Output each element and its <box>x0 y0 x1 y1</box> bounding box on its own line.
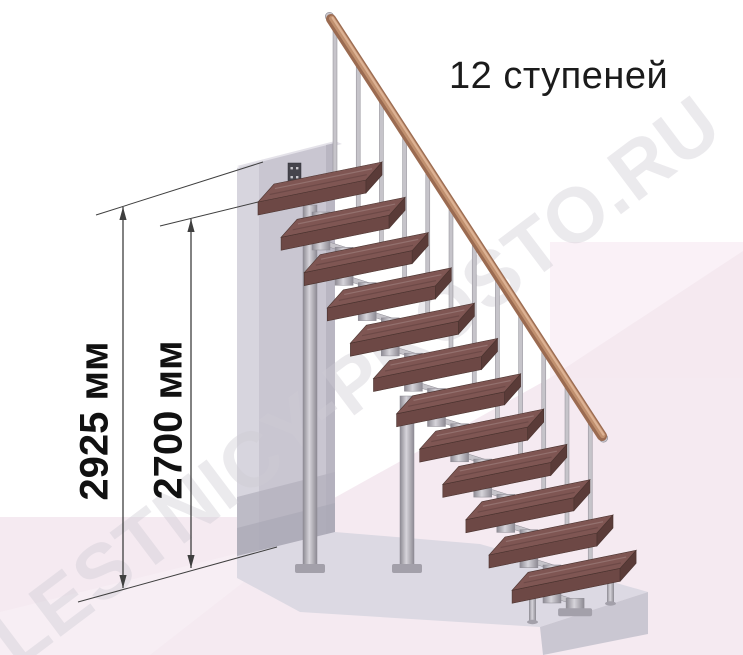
baluster <box>565 382 569 539</box>
diagram-canvas: LESTNICY-PROSTO.RU 2925 мм 2700 мм 12 ст… <box>0 0 743 655</box>
dimension-label-2925: 2925 мм <box>73 341 117 500</box>
support-column-upper <box>303 205 317 568</box>
baluster <box>356 61 360 222</box>
baluster <box>542 346 546 503</box>
baluster <box>472 239 476 398</box>
diagram-title: 12 ступеней <box>449 56 668 98</box>
baluster <box>588 418 592 575</box>
staircase-diagram: LESTNICY-PROSTO.RU 2925 мм 2700 мм <box>0 0 743 655</box>
baluster <box>519 311 523 469</box>
baluster <box>495 275 499 433</box>
dimension-label-2700: 2700 мм <box>147 340 191 499</box>
baluster <box>333 25 337 186</box>
